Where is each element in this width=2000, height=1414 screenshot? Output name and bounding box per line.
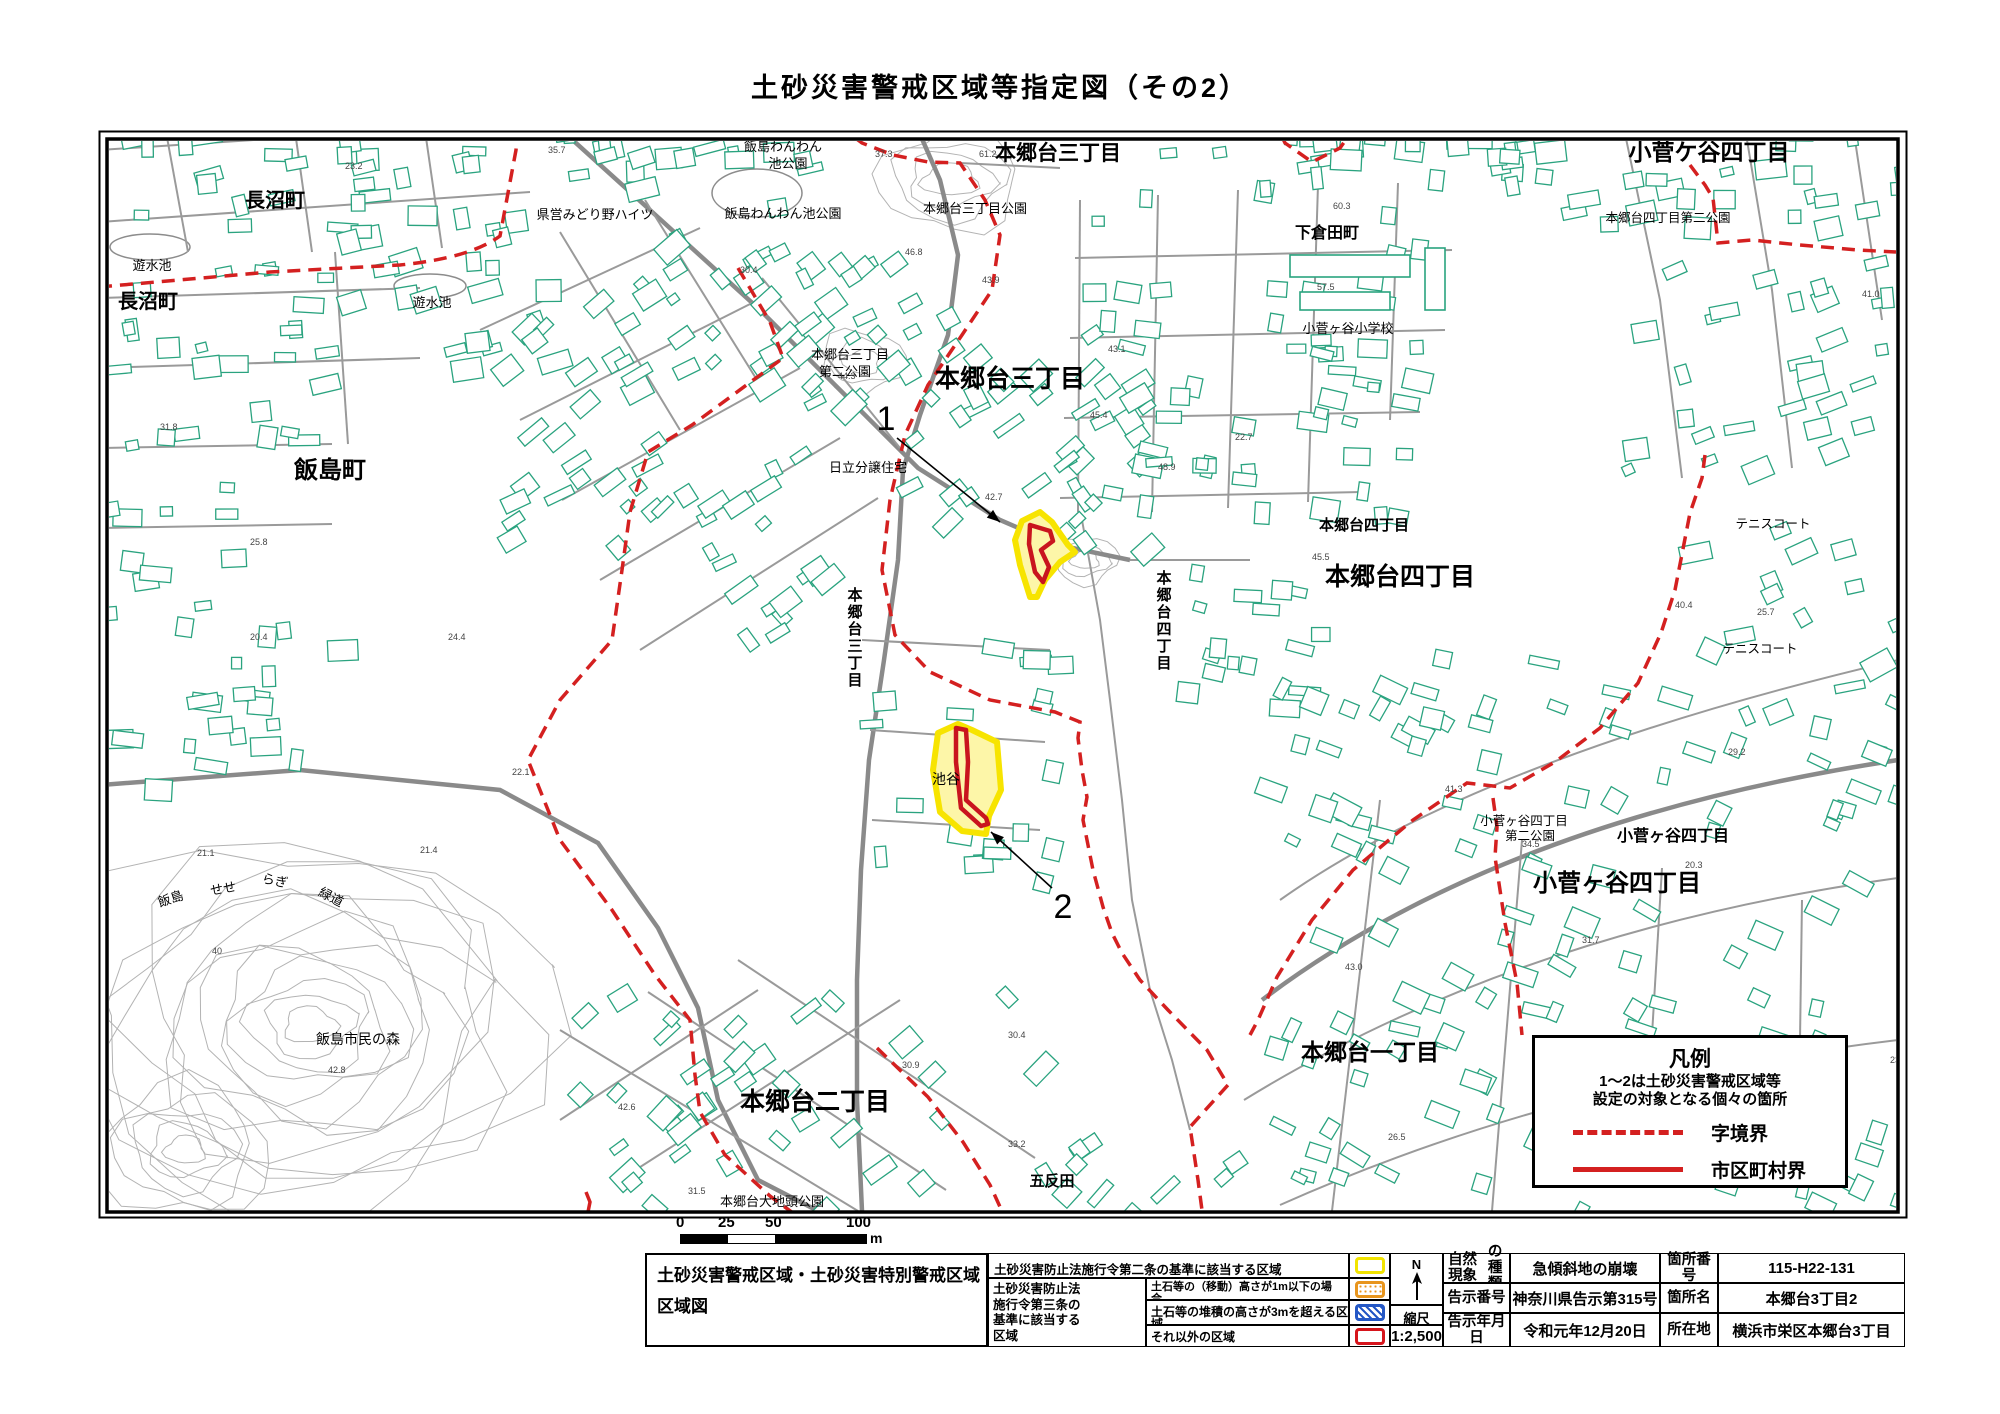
detail-key: 告示年月日 [1443,1313,1510,1347]
svg-text:45.5: 45.5 [1312,552,1330,562]
north-label: N [1412,1257,1421,1272]
svg-text:45.4: 45.4 [1090,410,1108,420]
detail-value: 本郷台3丁目2 [1718,1283,1905,1313]
legend-entry-aza-boundary: 字境界 [1573,1119,1845,1146]
compass-cell: N [1390,1253,1443,1305]
svg-text:37.3: 37.3 [875,149,893,159]
map-label: 本郷台大地頭公園 [720,1194,824,1209]
detail-value: 横浜市栄区本郷台3丁目 [1718,1313,1905,1347]
detail-key: 箇所名 [1660,1283,1718,1313]
hazard-map-page: 12長沼町長沼町遊水池遊水池県営みどり野ハイツ飯島わんわん池公園飯島わんわん池公… [0,0,2000,1414]
map-legend-box: 凡例 1～2は土砂災害警戒区域等 設定の対象となる個々の箇所 字境界 市区町村界 [1532,1035,1848,1188]
yellow-zone-swatch [1355,1257,1385,1274]
scale-unit: m [870,1230,882,1246]
map-label: 池谷 [932,771,960,787]
svg-text:61.2: 61.2 [979,149,997,159]
scale-tick: 100 [846,1214,871,1231]
svg-text:31.8: 31.8 [160,422,178,432]
map-label: 飯島わんわん [744,139,822,154]
svg-text:41.3: 41.3 [1445,784,1463,794]
detail-value: 令和元年12月20日 [1510,1313,1660,1347]
map-label: 本郷台三丁目 [995,141,1121,165]
zone-swatch-red-cell [1349,1325,1390,1347]
svg-text:42.7: 42.7 [985,492,1003,502]
svg-text:21.4: 21.4 [420,845,438,855]
zone-legend-group-cell: 土砂災害防止法 施行令第三条の 基準に該当する 区域 [988,1278,1146,1347]
scale-label-cell: 縮尺 [1390,1305,1443,1325]
map-label: 長沼町 [118,290,178,313]
map-label: 小菅ヶ谷四丁目 [1533,870,1701,897]
map-label: 本郷台三丁目 [935,364,1085,393]
map-label: 小菅ヶ谷四丁目 [1617,826,1729,845]
red-zone-swatch [1355,1328,1385,1345]
svg-text:29.2: 29.2 [1728,747,1746,757]
svg-text:20.4: 20.4 [250,632,268,642]
municipal-boundary-line [586,1192,590,1212]
scale-bar-graphic [680,1234,867,1244]
detail-key: 所在地 [1660,1313,1718,1347]
map-label: 日立分譲住宅 [829,460,907,475]
svg-text:57.5: 57.5 [1317,282,1335,292]
legend-entry-municipal-boundary: 市区町村界 [1573,1156,1845,1183]
svg-text:60.3: 60.3 [1333,201,1351,211]
map-label: 池公園 [768,156,807,171]
map-label: テニスコート [1735,517,1810,531]
legend-title: 凡例 [1535,1043,1845,1073]
scale-value-cell: 1:2,500 [1390,1325,1443,1347]
svg-text:43.1: 43.1 [1108,344,1126,354]
map-label: テニスコート [1722,642,1797,656]
zone-swatch-orange-cell [1349,1278,1390,1300]
map-label: 本郷台一丁目 [1301,1039,1439,1065]
svg-text:20.3: 20.3 [1685,860,1703,870]
zone-legend-row2: 土石等の（移動）高さが1m以下の場合、 土石等の移動による力が100kN/㎡を超… [1146,1278,1349,1300]
svg-text:22.1: 22.1 [512,767,530,777]
map-label: 本郷台三丁目 [811,347,889,362]
sheet-title-line2: 区域図 [657,1292,986,1317]
svg-text:43.9: 43.9 [982,275,1000,285]
svg-text:21.1: 21.1 [197,848,215,858]
svg-text:31.7: 31.7 [1582,935,1600,945]
solid-red-line-sample [1573,1167,1683,1172]
svg-text:30.9: 30.9 [902,1060,920,1070]
scale-tick: 0 [676,1214,684,1231]
north-arrow-icon [1410,1272,1424,1300]
svg-text:35.7: 35.7 [548,145,566,155]
svg-text:24.4: 24.4 [448,632,466,642]
detail-value: 急傾斜地の崩壊 [1510,1253,1660,1283]
map-label: 本郷台三丁目 [847,586,862,689]
svg-text:31.5: 31.5 [688,1186,706,1196]
detail-key: 告示番号 [1443,1283,1510,1313]
map-label: 県営みどり野ハイツ [537,207,654,222]
svg-text:23.2: 23.2 [345,161,363,171]
detail-key: 箇所番号 [1660,1253,1718,1283]
map-label: 本郷台二丁目 [740,1087,890,1116]
zone-legend-row3: 土石等の堆積の高さが3mを超える区域 [1146,1300,1349,1325]
svg-text:44.3: 44.3 [838,371,856,381]
scale-bar: 0 25 50 100 m [676,1214,896,1248]
map-label: 長沼町 [245,189,305,212]
map-label: せせ [209,879,237,898]
legend-note-line1: 1～2は土砂災害警戒区域等 [1535,1073,1845,1091]
scale-tick: 25 [718,1214,735,1231]
legend-entry-label: 市区町村界 [1711,1156,1806,1183]
page-title: 土砂災害警戒区域等指定図（その2） [0,66,2000,105]
svg-text:40: 40 [212,946,222,956]
map-label: 飯島町 [293,456,366,484]
svg-text:43.0: 43.0 [1345,962,1363,972]
map-label: 本郷台四丁目 [1325,562,1475,591]
zone-swatch-blue-cell [1349,1300,1390,1325]
dashed-red-line-sample [1573,1130,1683,1135]
svg-text:42.8: 42.8 [328,1065,346,1075]
zone-swatch-yellow-cell [1349,1253,1390,1278]
svg-text:48.9: 48.9 [1158,462,1176,472]
svg-text:25.7: 25.7 [1757,607,1775,617]
map-label: 五反田 [1029,1173,1074,1190]
map-label: 本郷台四丁目 [1156,569,1171,672]
detail-value: 115-H22-131 [1718,1253,1905,1283]
map-label: 小菅ヶ谷小学校 [1302,321,1393,336]
blue-zone-swatch [1355,1304,1385,1321]
map-label: 遊水池 [132,258,171,273]
detail-key: 自然現象の種類 [1443,1253,1510,1283]
map-sheet-title-cell: 土砂災害警戒区域・土砂災害特別警戒区域 区域図 [645,1253,988,1347]
scale-tick: 50 [765,1214,782,1231]
svg-text:46.8: 46.8 [905,247,923,257]
topographic-map-canvas: 12長沼町長沼町遊水池遊水池県営みどり野ハイツ飯島わんわん池公園飯島わんわん池公… [0,0,2000,1414]
map-label: 飯島 [156,888,185,910]
detail-value: 神奈川県告示第315号 [1510,1283,1660,1313]
svg-text:41.0: 41.0 [1862,289,1880,299]
svg-text:40.4: 40.4 [1675,600,1693,610]
svg-text:34.5: 34.5 [1522,839,1540,849]
map-label: らぎ [261,871,290,891]
map-label: 本郷台三丁目公園 [923,201,1027,216]
map-label: 遊水池 [412,295,451,310]
map-label: 小菅ケ谷四丁目 [1629,139,1790,165]
map-label: 本郷台四丁目第二公園 [1605,210,1730,225]
map-label: 本郷台四丁目 [1319,516,1409,534]
svg-text:42.6: 42.6 [618,1102,636,1112]
svg-text:30.4: 30.4 [1008,1030,1026,1040]
zone-legend-row4: それ以外の区域 [1146,1325,1349,1347]
svg-text:26.5: 26.5 [1388,1132,1406,1142]
map-label: 飯島わんわん池公園 [724,206,841,221]
site-marker-number: 2 [1054,888,1073,926]
map-label: 飯島市民の森 [316,1031,400,1047]
svg-text:33.2: 33.2 [1008,1139,1026,1149]
svg-text:25.8: 25.8 [250,537,268,547]
svg-text:22.7: 22.7 [1235,432,1253,442]
legend-entry-label: 字境界 [1711,1119,1768,1146]
map-label: 下倉田町 [1295,223,1359,242]
orange-zone-swatch [1355,1281,1385,1298]
sheet-title-line1: 土砂災害警戒区域・土砂災害特別警戒区域 [657,1261,986,1286]
svg-text:30.4: 30.4 [740,265,758,275]
zone-legend-row1: 土砂災害防止法施行令第二条の基準に該当する区域 [988,1253,1349,1278]
map-label: 小菅ヶ谷四丁目 [1480,814,1568,828]
site-marker-number: 1 [877,400,896,438]
info-table: 土砂災害警戒区域・土砂災害特別警戒区域 区域図 土砂災害防止法施行令第二条の基準… [645,1253,1905,1347]
legend-note-line2: 設定の対象となる個々の箇所 [1535,1091,1845,1109]
